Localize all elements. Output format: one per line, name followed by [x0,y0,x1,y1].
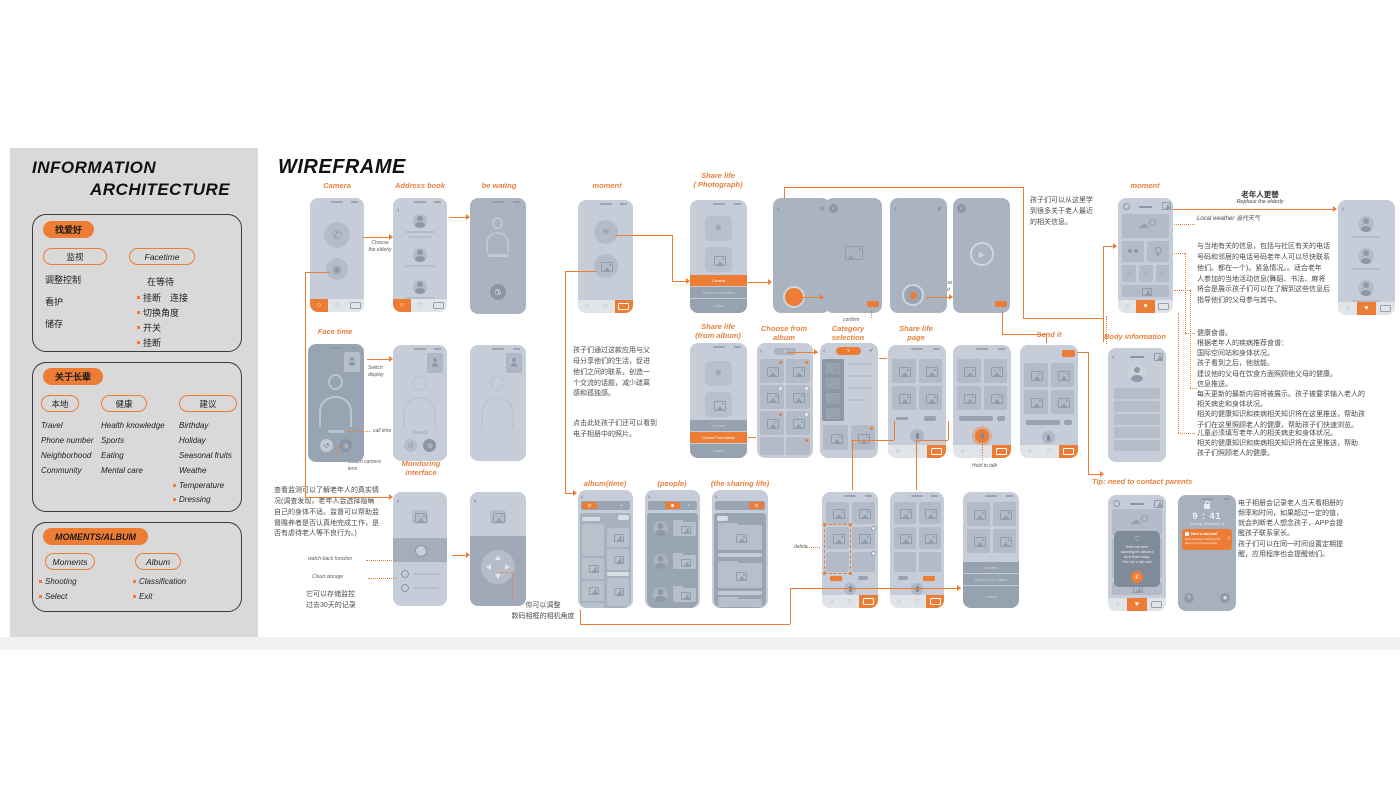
phone-monitoring-2: ‹ [470,492,526,606]
album-app-icon [705,392,732,417]
picture-icon [845,246,863,260]
flow-line [1023,318,1103,319]
photo-tile [919,359,942,383]
self-preview [344,352,360,372]
picture-icon [589,587,599,595]
phone-address-book: ‹ ○ ♡ [393,198,447,312]
local-item: Travel [41,421,63,430]
people-tile [1122,241,1144,262]
phone-share-album: ✳ Camera Choose From Album Cancel [690,343,747,458]
dpad-band [470,536,526,606]
hobby-item: 调整控制 [45,273,81,286]
category-thumb [826,408,840,419]
dpad-right-icon [505,564,510,570]
folder-label [718,553,762,557]
tab-share-icon: ⊙ [749,502,764,509]
phone-album-sharing: ‹ · · ⊙ [712,490,768,608]
ctrl-bar [896,417,908,420]
flow-line [305,272,330,273]
label-people: (people) [644,479,700,488]
text-storage-note: 它可以存储监控 过去30天的记录 [306,590,356,612]
picture-icon [714,256,726,266]
confirm-button [867,301,879,307]
status-bar [584,203,627,206]
album-rect [863,598,874,605]
moments-box: MOMENTS/ALBUM Moments Album Shooting Sel… [32,522,242,612]
call-time-bar [328,430,344,433]
phone-delete-photos: ○ ♡ [822,492,878,608]
photo-tile [826,502,849,524]
mic-button [911,583,923,595]
photo-tile [993,529,1016,553]
caller-avatar-outline [400,373,440,417]
photo-tile [760,411,784,435]
flow-line-dotted [1178,433,1195,434]
nav-heart-icon: ♥ [1127,598,1146,611]
name-line [488,254,508,257]
contact-line [405,231,435,233]
facetime-item: 挂断 [137,336,161,349]
picture-icon [974,537,986,547]
reminder-popup: ♡ Dulin has been scanning the album a lo… [1114,531,1160,587]
text-local-info: 与当地有关的信息，包括与社区有关的电话 号码和邻居的电话号码老年人可以尽快联系 … [1197,242,1347,307]
photo-tile [760,385,784,409]
picture-icon [829,365,839,373]
nav-home-icon: ○ [890,595,908,608]
facetime-item-label: 挂断 [143,336,161,349]
bullet-dot [173,484,176,487]
facetime-header: 在等待 [147,275,174,288]
picture-icon [1058,398,1070,408]
phone-share-photo: ✳ Camera Choose From Album Cancel [690,200,747,313]
text-click-album-note: 点击此处孩子们还可以看到 电子相册中的照片。 [573,419,678,441]
lock-time: 9 : 41 [1178,511,1236,521]
back-icon: ‹ [829,204,838,213]
folder-card [718,525,762,550]
poster-canvas: INFORMATION ARCHITECTURE 找爱好 监视 Facetime… [0,0,1400,788]
nav-heart-icon: ♡ [841,595,860,608]
select-dot [805,439,808,442]
album-tabs: · · ⊙ [715,501,765,510]
album-app-icon [594,254,618,278]
bottom-nav: ○ ♡ [578,300,633,313]
photo-tile [967,502,990,526]
album-bullet-label: Exit [139,592,152,601]
facetime-item-label: 开关 [143,321,161,334]
picture-icon [493,513,505,523]
panel-title-line1: INFORMATION [32,158,156,178]
local-item: Phone number [41,436,93,445]
bullet-dot [39,580,42,583]
contact-avatar [1358,248,1374,264]
select-dot [779,361,782,364]
moments-bullet-label: Select [45,592,67,601]
camera-app-icon: ✳ [705,216,732,241]
bottom-nav: ○ ♡ [1020,445,1078,458]
phone-facetime-1: ↺ ✆ [308,344,364,462]
flow-line [852,440,853,490]
label-be-waiting: be wating [476,181,522,190]
tab-time-icon: · [716,502,731,509]
bottom-nav: ○ ♡ [310,299,364,312]
flow-line [1077,352,1088,353]
picture-icon [1058,371,1070,381]
album-tabs: ⊙ · + [581,501,630,510]
flow-line [790,588,791,624]
contact-line [1352,236,1380,238]
flow-line-dotted [512,572,513,600]
back-icon: ‹ [474,498,476,505]
nav-album-icon [926,595,944,608]
album-rect [433,302,444,309]
photo-tile [852,527,875,549]
nav-home-icon: ○ [393,299,411,312]
flow-line-dotted [1185,253,1186,333]
switch-camera-icon: ↺ [320,439,333,452]
local-item: Neighborhood [41,451,91,460]
flow-arrow [686,278,690,284]
label-moment-left: moment [588,181,626,190]
flow-line-dotted [368,578,396,579]
picture-icon [859,534,871,544]
picture-icon [974,510,986,520]
sheet-choose-row: Choose From Album [690,287,747,298]
nav-album-icon [1155,300,1173,313]
select-dot [779,387,782,390]
delete-button [830,576,842,581]
back-icon: ‹ [777,206,779,213]
sheet-camera-row: Camera [690,275,747,286]
selection-handle [849,572,852,575]
phone-facetime-2: ↺ ✆ [393,345,447,461]
preview-avatar [430,357,440,367]
flow-line [948,421,949,440]
advice-bullet: Dressing [173,495,211,504]
nav-home-icon: ○ [1338,302,1357,315]
contact-line [1352,268,1380,270]
photo-tile [823,425,848,450]
tab-share-icon: + [681,502,696,509]
monitor-camera-icon: ◉ [326,258,348,280]
photo-tile [786,411,810,435]
category-sidebar [822,359,844,421]
photo-tile [582,524,604,556]
ctrl-button [997,416,1005,421]
person-avatar [653,521,668,536]
picture-icon [1000,537,1012,547]
picture-icon [614,588,624,596]
folder-card [718,563,762,588]
facetime-item-label: 挂断 连接 [143,291,188,304]
phone-album-grid: ‹ ˅ [757,343,813,458]
capture-band [393,538,447,562]
picture-icon [833,509,845,519]
photo-tile [957,359,981,383]
label-choose-from-album: Choose from album [755,324,813,343]
dpad-up-icon [495,555,501,560]
mic-button [1042,431,1055,444]
picture-icon [793,367,805,377]
select-dot [779,413,782,416]
status-bar [476,348,520,351]
flow-line [894,421,895,440]
delete-selection-box [824,524,851,574]
bullet-dot [39,595,42,598]
people-icon [1134,249,1138,253]
phone-tip-reminder: ☁ ♡ Dulin has been scanning the album a … [1108,495,1166,611]
nav-album-icon [992,445,1011,458]
select-dot [805,387,808,390]
label-share-life-photo: Share life ( Photograph) [686,171,750,190]
bullet-dot [137,341,140,344]
advice-item: Birthday [179,421,208,430]
photo-tile [894,552,916,572]
tab-share-icon: + [614,502,629,509]
moments-bullet-label: Shooting [45,577,77,586]
flow-arrow [466,214,470,220]
album-pill: Album [135,553,181,570]
photo-tile [894,502,916,524]
phone-album-time: ‹ ⊙ · + [578,490,633,608]
picture-icon [964,367,976,377]
photo-tile [967,529,990,553]
selection-handle [823,523,826,526]
phone-monitoring-1: ‹ [393,492,447,606]
bullet-dot [133,580,136,583]
back-icon: ‹ [957,204,966,213]
form-field [1114,414,1160,425]
photo-tile [892,386,916,410]
select-ring [871,526,876,531]
picture-icon [858,434,870,444]
folder [673,588,696,602]
picture-icon [964,394,976,404]
dpad-control [481,550,515,584]
flow-line [797,297,822,298]
note-watch-back: watch-back function [308,556,352,563]
text-learn-note: 孩子们可以从这里学 到很多关于老人最近 的相关信息。 [1030,196,1108,229]
photo-tile [786,385,810,409]
text-push-note: 信息推送。 每天更新的最新内容将被展示。孩子被要求输入老人的 相关病史和身体状况… [1197,380,1377,431]
picture-icon [767,367,779,377]
footer-strip [0,637,1400,650]
photo-tile [892,359,916,383]
sheet-cancel-row: Cancel [690,299,747,313]
photo-tile [1051,390,1074,414]
album-body [714,513,766,608]
tab-people-icon: · [598,502,613,509]
contact-line [405,265,435,267]
monitor-pill: 监视 [43,248,107,265]
sheet-camera-row: Camera [690,420,747,431]
nav-album-icon [859,595,878,608]
photo-tile [993,502,1016,526]
picture-icon [793,393,805,403]
nav-heart-icon: ♡ [1039,445,1058,458]
tab-people-icon: · [732,502,747,509]
smiley-tile: ☺ [1156,265,1169,282]
lock-date: Tuesday, September 11 [1178,522,1236,526]
flow-line-dotted [348,431,370,432]
camera-icon [1113,500,1120,507]
phone-send-it: ○ ♡ [1020,345,1078,458]
back-icon: ‹ [581,494,583,501]
record-dot [910,292,917,299]
person-avatar [653,554,668,569]
nav-heart-icon: ♥ [1357,302,1376,315]
sheet-cancel-row: Cancel [690,444,747,458]
picture-icon [859,509,871,519]
phone-elder-contacts: ‹ ○ ♥ [1338,200,1395,315]
flow-line [305,272,306,497]
phone-grid-sheet: Camera Choose From Album Cancel [963,492,1019,608]
flow-line-dotted [1178,313,1179,433]
weather-tile: ☁ [1122,214,1169,238]
flow-line [363,237,391,238]
picture-icon [829,380,839,388]
label-share-life-album: Share life (from album) [686,322,750,341]
status-bar [316,201,358,204]
elder-avatar-outline [484,216,512,246]
back-icon: ‹ [894,206,896,213]
health-item: Sports [101,436,124,445]
status-bar [399,348,441,351]
photo-tile [851,425,875,450]
photo-tile [919,386,942,410]
record-line [413,587,439,589]
photo-tile [984,386,1007,410]
bottom-nav: ○ ♡ [393,299,447,312]
advice-bullet-label: Dressing [179,495,211,504]
picture-icon [736,534,747,543]
photo-tile [582,558,604,579]
photo-tile [1024,390,1048,414]
text-recipe-note: 健康食谱。 根据老年人的疾病推荐食谱： 国际空间站和身体状况。 孩子看到之后，他… [1197,329,1362,380]
moments-bullet: Select [39,592,67,601]
label-share-life-page: Share life page [887,324,945,343]
picture-icon [829,395,839,403]
picture-icon [1031,371,1043,381]
nav-album-icon [1376,302,1395,315]
elders-tag: 关于长辈 [43,368,103,385]
date-header [607,572,629,576]
cloud-icon: ☁ [1138,218,1149,231]
phone-lock-screen: 9 : 41 Tuesday, September 11 Have a call… [1178,495,1236,611]
flow-line-dotted [1174,224,1195,225]
location-dot [1157,254,1159,256]
nav-heart-icon: ♡ [411,299,429,312]
dpad-down-icon [495,574,501,579]
flow-arrow [573,490,577,496]
picture-icon [681,526,691,534]
info-architecture-panel: INFORMATION ARCHITECTURE 找爱好 监视 Facetime… [10,148,258,637]
phone-hold-to-talk: ○ ♡ [953,345,1011,458]
monitor-view [412,510,428,524]
moments-tag: MOMENTS/ALBUM [43,528,148,545]
facetime-pill: Facetime [129,248,195,265]
health-item: Mental care [101,466,143,475]
ctrl-button [924,416,936,421]
flow-line [580,610,581,624]
notification-body: Dulin has been watching the album a lot … [1185,538,1225,546]
flow-line [615,235,672,236]
health-pill: 健康 [101,395,147,412]
hobby-item: 看护 [45,295,63,308]
picture-icon [767,419,779,429]
flow-line [672,235,673,281]
category-thumb [826,378,840,389]
photo-tile [919,552,941,572]
monitor-view [490,510,506,524]
picture-icon [681,592,691,600]
record-dot-icon [401,570,409,578]
flow-line-dotted [1106,316,1107,344]
sheet-choose-row: Choose From Album [690,432,747,443]
flow-line [305,497,391,498]
nav-album-icon [1147,598,1166,611]
caller-avatar-outline [316,372,356,416]
album-rect [1158,303,1169,310]
back-icon: ‹ [397,498,399,505]
status-bar [828,495,872,498]
flow-line [1103,246,1104,342]
back-icon: ‹ [715,494,717,501]
category-line [848,375,872,377]
ctrl-button [898,576,908,580]
category-line [848,399,864,401]
profile-avatar [1128,364,1146,382]
album-rect [1063,448,1074,455]
photo-tile [919,502,941,524]
advice-bullet-label: Temperature [179,481,224,490]
record-dot-icon [401,584,409,592]
flow-arrow [389,356,393,362]
photo-tile [582,603,604,608]
status-bar [696,346,741,349]
folder [673,522,696,536]
flow-line [565,271,597,272]
label-face-time: Face time [310,327,360,336]
picture-icon [714,401,726,411]
local-pill: 本地 [41,395,79,412]
selection-handle [823,572,826,575]
phone-photo-confirm: ‹ [825,198,882,313]
preview-avatar [347,356,357,366]
notification-title: Have a call now! [1191,532,1217,536]
bottom-nav: ○ ♡ [890,595,944,608]
picture-icon [1162,202,1171,210]
picture-icon [793,419,805,429]
picture-icon [900,509,912,519]
bullet-dot [173,498,176,501]
picture-icon [926,367,938,377]
preview-avatar [509,357,519,367]
sheet-choose-row: Choose From Album [963,574,1019,585]
note-confirm: confirm [843,317,859,324]
phone-body-information: ‹ [1108,348,1166,462]
picture-icon [899,367,911,377]
phone-camera: ✆ ◉ ○ ♡ [310,198,364,312]
album-rect [350,302,361,309]
select-button [618,515,629,520]
phone-album-people: ‹ · ☻ + [645,490,700,608]
photo-tile [607,578,629,606]
flow-line [784,188,785,198]
picture-icon [681,559,691,567]
camera-icon: ◉ [937,205,942,212]
moments-pill: Moments [45,553,95,570]
person-avatar [653,587,668,602]
